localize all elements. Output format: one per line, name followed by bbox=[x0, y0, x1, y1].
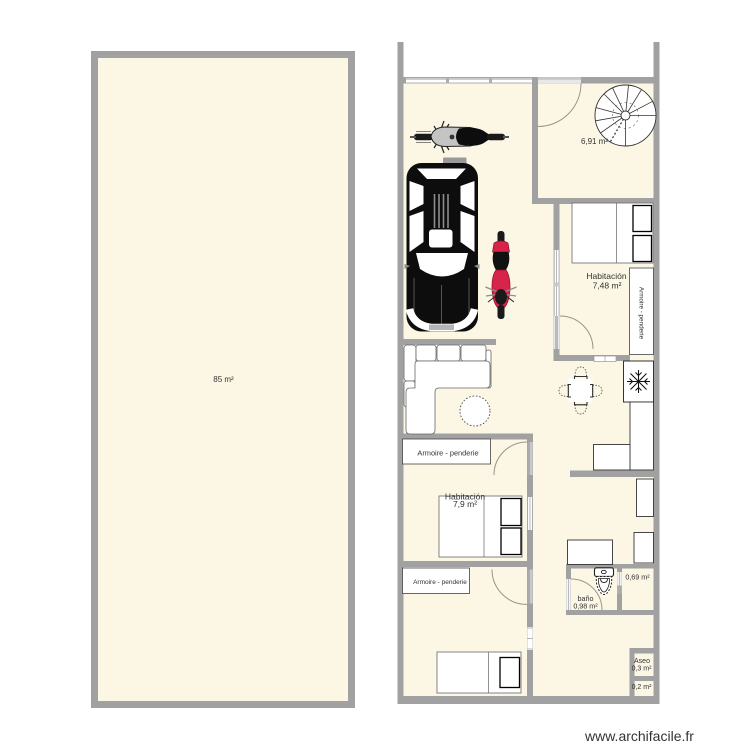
svg-text:7,48 m²: 7,48 m² bbox=[593, 281, 622, 291]
svg-text:Habitación: Habitación bbox=[586, 271, 626, 281]
svg-text:Armoire - penderie: Armoire - penderie bbox=[417, 449, 478, 458]
svg-text:Armoire - penderie: Armoire - penderie bbox=[413, 579, 467, 586]
svg-text:Armoire - penderie: Armoire - penderie bbox=[638, 287, 645, 340]
svg-text:0,69 m²: 0,69 m² bbox=[625, 573, 650, 582]
svg-text:0,98 m²: 0,98 m² bbox=[573, 602, 598, 611]
svg-text:Aseo: Aseo bbox=[634, 658, 650, 665]
svg-text:0,3 m²: 0,3 m² bbox=[632, 666, 653, 673]
svg-text:0,2 m²: 0,2 m² bbox=[632, 684, 653, 691]
svg-text:7,9 m²: 7,9 m² bbox=[453, 499, 477, 509]
svg-text:www.archifacile.fr: www.archifacile.fr bbox=[584, 728, 694, 744]
svg-text:6,91 m²: 6,91 m² bbox=[581, 137, 608, 146]
svg-text:85 m²: 85 m² bbox=[213, 375, 234, 384]
